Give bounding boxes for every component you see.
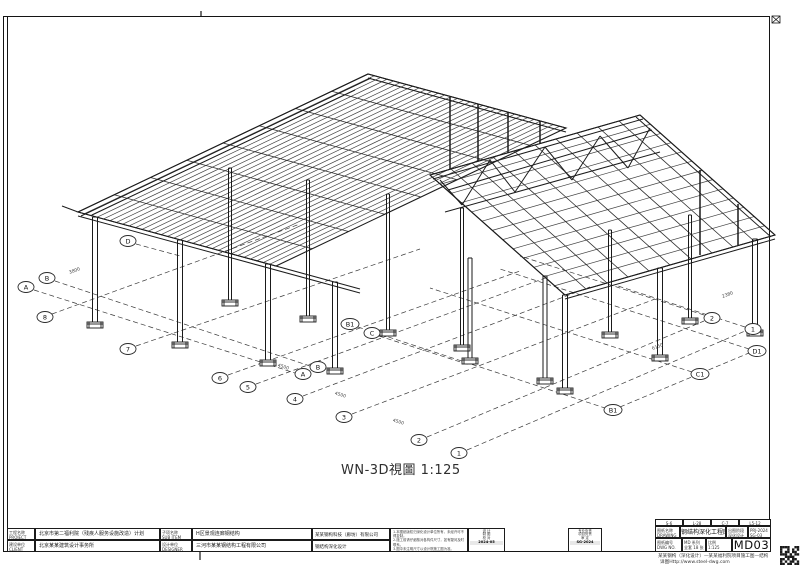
qr-module [797,560,799,562]
roof-rafter [123,86,413,224]
qr-module [785,546,787,548]
client-value: 北京某某建筑设计事务所 [35,540,160,552]
designer-value: 三河市某某钢结构工程有限公司 [192,540,312,552]
qr-module [792,558,794,560]
drawing-main-title: 钢结构深化工程图 [680,526,726,538]
grid-line-dashed [256,277,548,384]
deepen-scope-cell: 钢结构深化设计 [312,540,390,552]
grid-line-dashed [467,331,745,450]
grid-line-dashed [52,224,300,314]
qr-module [797,546,799,548]
grid-line-dashed [136,244,180,256]
grid-line-dashed [352,299,655,414]
qr-module [780,548,782,550]
designer-label: 设计单位DESIGNER [160,540,192,552]
grid-bubble-label: D [125,237,130,245]
qr-module [782,546,784,548]
roof-rafter [206,109,496,247]
dimension-label: 3800 [68,266,81,276]
qr-module [790,553,792,555]
project-code-cell: PRJ-2024SG-03 [748,526,771,538]
qr-module [792,548,794,550]
qr-module [787,551,789,553]
roof-rafter [97,79,387,217]
code-cell-3: C-7 [711,519,739,526]
roof-rafter [174,100,464,238]
grid-bubble-label: C1 [696,370,705,378]
qr-module [787,548,789,550]
grid-bubble-label: A [24,283,29,291]
grid-bubble-label: A [301,370,306,378]
grid-bubble-label: 5 [246,383,250,391]
qr-module [785,553,787,555]
qr-module [790,560,792,562]
frame-member [78,216,360,293]
qr-module [780,546,782,548]
general-notes-cell: 1.本图纸版权归深化设计单位所有，未经许可不得复制。 2.施工前请仔细核对各构件… [390,528,468,552]
qr-module [797,553,799,555]
grid-line-dashed [618,286,745,327]
frame-member [81,78,371,216]
roof-purlin [514,151,649,271]
roof-rafter [238,118,528,256]
drawing-sheet: AB8D765AB4321B1C21D1C1B14500450045003800… [0,0,800,565]
scale-cell: 比例1:125 [706,538,732,552]
qr-code [780,546,800,565]
roof-rafter [451,133,661,193]
roof-rafter [155,95,445,233]
roof-rafter [148,93,438,231]
grid-bubble-label: 1 [457,449,461,457]
subitem-value: H区景观连廊钢结构 [192,528,312,540]
qr-module [780,558,782,560]
roof-rafter [135,90,425,228]
grid-line-dashed [620,353,749,407]
sheet-number-cell: MD03 [732,538,771,552]
grid-bubble-label: B [316,363,320,371]
qr-module [794,558,796,560]
grid-bubble-label: B1 [609,406,618,414]
roof-purlin [493,157,628,277]
view-caption: WN-3D視圖 1:125 [341,459,461,478]
roof-purlin [535,145,670,265]
qr-module [792,560,794,562]
3d-wireframe-view: AB8D765AB4321B1C21D1C1B14500450045003800… [0,0,800,565]
roof-purlin [223,143,421,197]
roof-purlin [332,91,530,145]
roof-rafter [503,180,713,240]
roof-rafter [187,104,477,242]
grid-bubble-label: 3 [342,413,346,421]
roof-purlin [296,109,494,163]
roof-rafter [250,121,540,259]
qr-module [782,553,784,555]
dimension-label: 4500 [334,391,347,400]
roof-rafter [180,102,470,240]
qr-module [794,553,796,555]
subitem-label: 子项名称SUB ITEM [160,528,192,540]
qr-module [792,556,794,558]
frame-member [78,74,368,212]
client-label: 建设单位CLIENT [7,540,35,552]
qr-module [787,556,789,558]
qr-module [794,551,796,553]
roof-purlin [472,163,607,283]
grid-bubble-label: 1 [751,325,755,333]
qr-module [780,553,782,555]
drawing-no-label: 图纸编号DWG NO. [655,538,682,552]
qr-module [794,546,796,548]
roof-purlin [556,139,691,259]
grid-bubble-label: B1 [346,320,355,328]
frame-member [368,78,566,132]
signature-block-2: 专业负责 项目负责 审 定 SG-2024 [568,528,602,552]
roof-rafter [472,152,682,212]
dimension-label: 2380 [721,290,734,300]
code-cell-1: S-6 [655,519,683,526]
grid-bubble-label: 6 [218,374,222,382]
grid-bubble-label: 2 [417,436,421,444]
dimension-label: 4500 [277,363,290,372]
roof-rafter [129,88,419,226]
deepen-company-cell: 某某钢构科技（廊坊）有限公司 [312,528,390,540]
qr-module [787,546,789,548]
roof-rafter [199,107,489,245]
roof-purlin [598,127,733,247]
series-cell: MD 系列全套 18 张 [682,538,706,552]
roof-rafter [110,83,400,221]
grid-bubble-label: 4 [293,395,297,403]
roof-rafter [523,198,733,258]
dimension-label: 4500 [392,418,405,427]
roof-rafter [544,217,754,277]
qr-module [790,556,792,558]
qr-module [780,560,782,562]
qr-module [785,556,787,558]
footer-url-line: 详图Http://www.steel-dwg.com [660,559,730,565]
code-cell-2: L-28 [683,519,711,526]
roof-rafter [534,207,744,267]
drawing-name-label: 图纸名称DRAWING [655,526,680,538]
qr-module [780,551,782,553]
roof-rafter [84,76,374,214]
frame-member [368,74,566,128]
roof-purlin [187,160,385,214]
grid-bubble-label: 2 [710,314,714,322]
qr-module [785,560,787,562]
code-cell-4: L5-12 [739,519,771,526]
qr-module [787,558,789,560]
roof-rafter [482,161,692,221]
frame-member [565,239,775,299]
signature-block-1: 设 计 制 图 校 对 2024-05 [468,528,505,552]
roof-rafter [167,98,457,236]
roof-rafter [270,126,560,264]
roof-purlin [619,121,754,241]
grid-bubble-label: C [370,329,375,337]
grid-bubble-label: D1 [752,347,761,355]
qr-module [785,551,787,553]
roof-purlin [151,178,349,232]
roof-rafter [193,105,483,243]
frame-member [430,175,565,295]
grid-line-dashed [34,290,295,373]
project-name-label: 工程名称PROJECT [7,528,35,540]
grid-bubble-label: B [45,274,49,282]
stage-cell: 出图阶段深化设计 [726,526,748,538]
frame-member [440,180,462,205]
frame-member [565,235,775,295]
frame-member [62,206,78,212]
roof-rafter [104,81,394,219]
roof-purlin [259,126,457,180]
qr-module [797,548,799,550]
project-name-value: 北京市第二福利院（残疾人服务设施改造）计划 [35,528,160,540]
roof-purlin [114,195,312,249]
grid-bubble-label: 8 [43,313,47,321]
frame-member [92,90,355,215]
qr-module [782,558,784,560]
roof-rafter [116,84,406,222]
roof-rafter [555,226,765,286]
qr-module [792,551,794,553]
grid-bubble-label: 7 [126,345,130,353]
frame-member [640,115,775,235]
